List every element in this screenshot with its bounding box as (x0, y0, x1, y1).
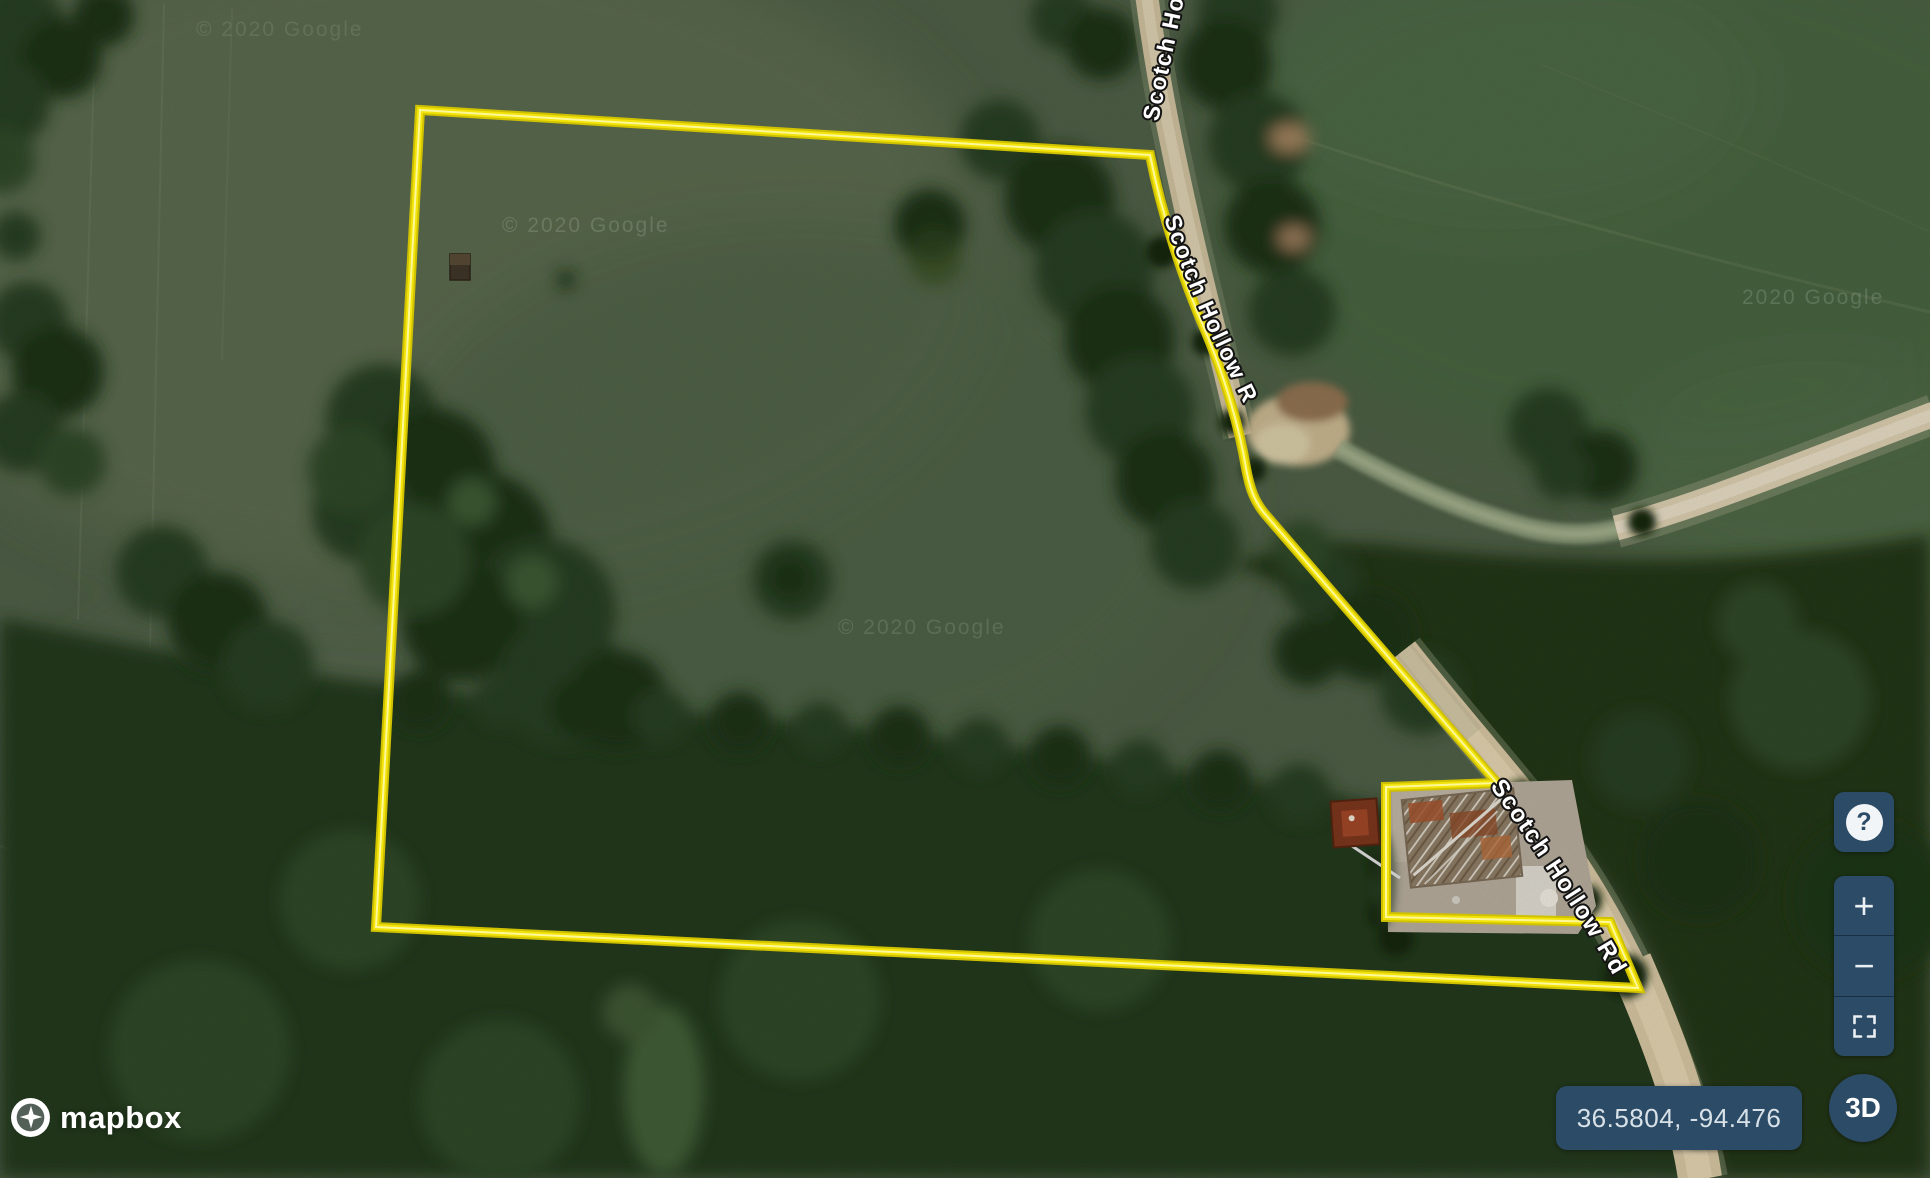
threed-toggle-button[interactable]: 3D (1829, 1074, 1897, 1142)
map-canvas[interactable]: © 2020 Google © 2020 Google © 2020 Googl… (0, 0, 1930, 1178)
mapbox-logo[interactable]: mapbox (10, 1097, 182, 1138)
help-icon: ? (1846, 804, 1883, 841)
google-watermark: © 2020 Google (838, 616, 1006, 639)
google-watermark: © 2020 Google (502, 214, 670, 237)
help-button[interactable]: ? (1834, 792, 1894, 852)
threed-label: 3D (1845, 1092, 1881, 1124)
imagery-grain (0, 0, 1930, 1178)
zoom-control-group: + − (1834, 876, 1894, 1056)
fullscreen-icon (1851, 1013, 1878, 1040)
zoom-out-button[interactable]: − (1834, 935, 1894, 995)
google-watermark: 2020 Google (1742, 286, 1884, 309)
map-view: © 2020 Google © 2020 Google © 2020 Googl… (0, 0, 1930, 1178)
fullscreen-button[interactable] (1834, 996, 1894, 1056)
mapbox-wordmark: mapbox (60, 1102, 182, 1133)
mapbox-logo-icon (10, 1097, 51, 1138)
google-watermark: © 2020 Google (196, 18, 364, 41)
zoom-in-button[interactable]: + (1834, 876, 1894, 935)
coordinates-badge: 36.5804, -94.476 (1556, 1086, 1802, 1150)
coordinates-text: 36.5804, -94.476 (1577, 1103, 1782, 1134)
